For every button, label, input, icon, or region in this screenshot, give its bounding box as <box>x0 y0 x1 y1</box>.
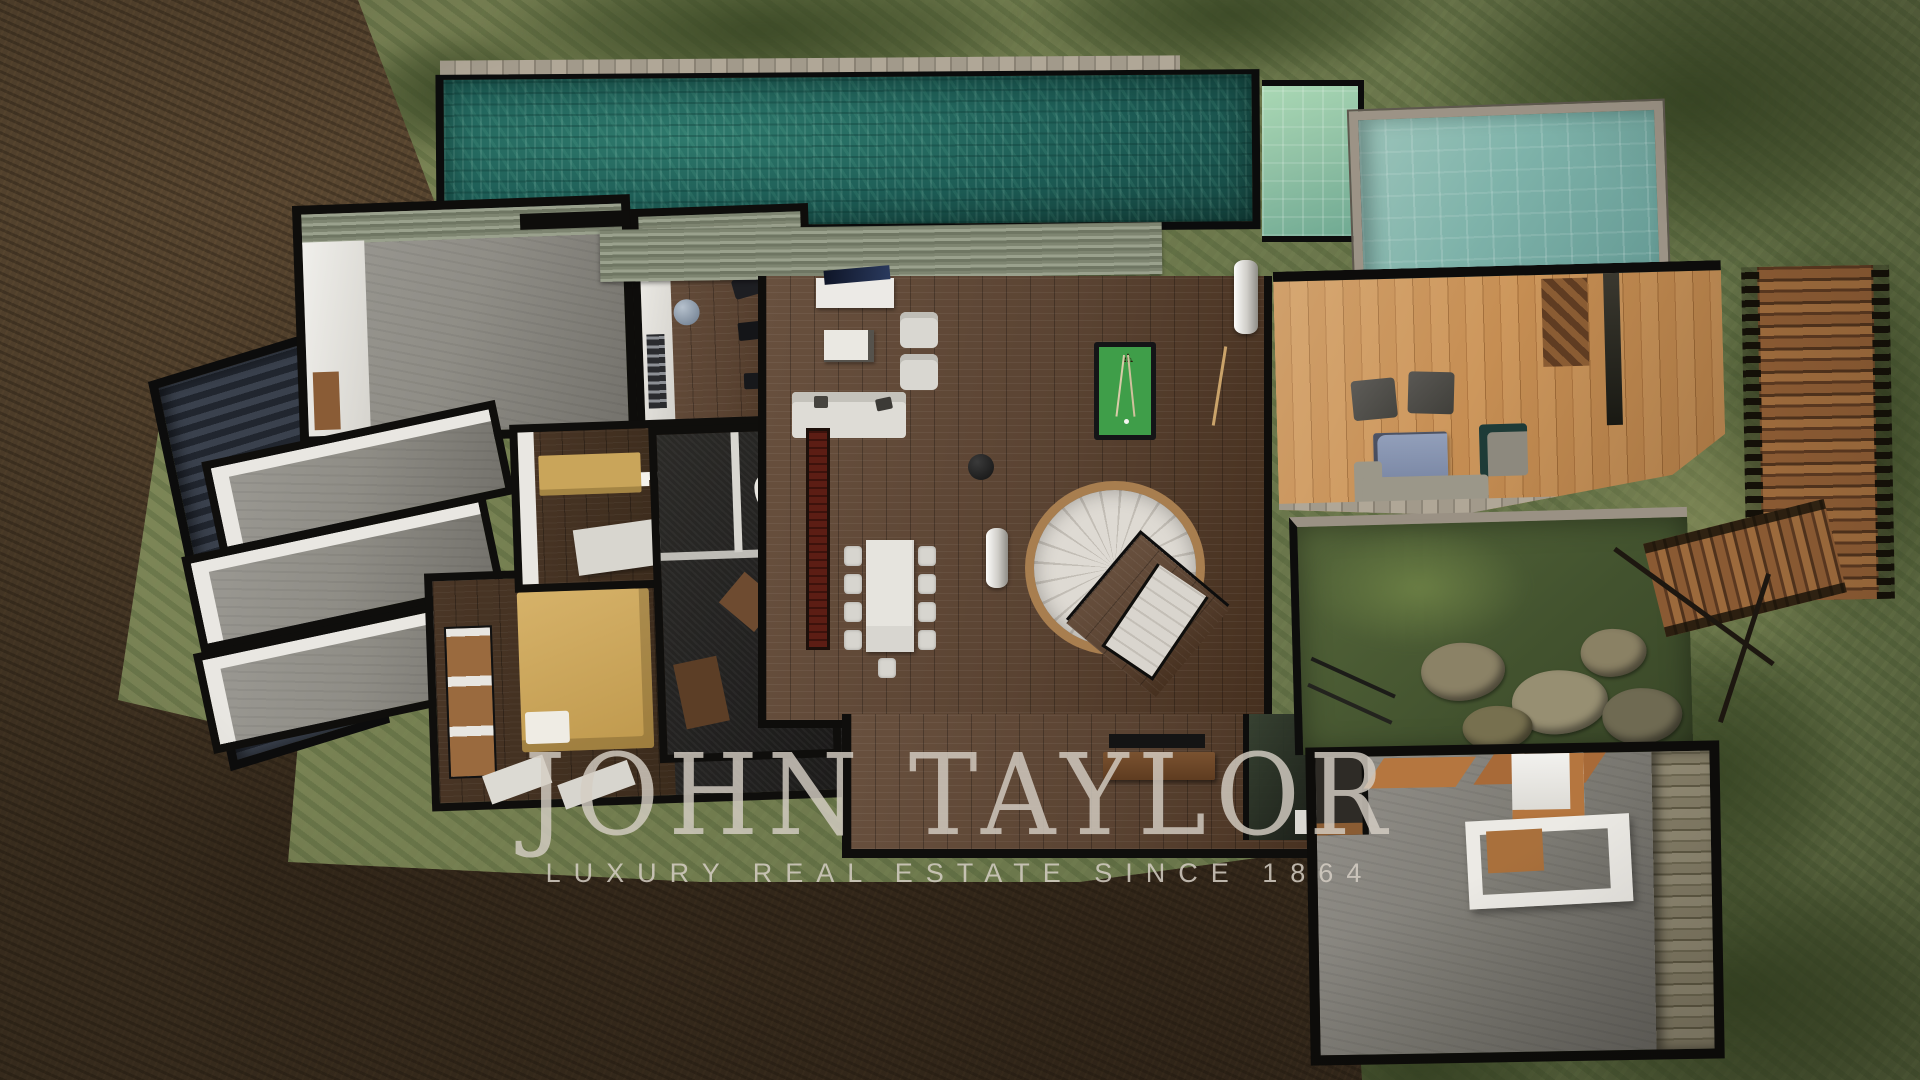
ottoman <box>1350 377 1398 421</box>
desk-yellow <box>538 452 641 496</box>
column-white <box>1234 260 1258 334</box>
bushes <box>1307 525 1530 651</box>
dining-table <box>866 540 914 652</box>
cue-stick <box>1127 355 1135 417</box>
spiral-staircase <box>1028 488 1224 676</box>
watermark-brand-name: JOHN TAYLOR <box>77 740 1843 852</box>
rock <box>1602 687 1683 745</box>
dining-chair <box>844 574 862 594</box>
hanging-fireplace <box>968 454 994 480</box>
white-wall <box>517 432 538 584</box>
dining-chair <box>918 602 936 622</box>
ottoman <box>1408 371 1455 414</box>
wood-mat <box>673 656 730 730</box>
cue-stick-wall <box>1212 346 1227 425</box>
wood-post <box>1541 278 1589 367</box>
deck-armchair <box>1479 423 1528 476</box>
courtyard-garden <box>1289 507 1693 755</box>
dining-chair <box>918 574 936 594</box>
column-white <box>986 528 1008 588</box>
armchair <box>900 354 938 390</box>
deck-coffee-table <box>1373 431 1448 479</box>
rock <box>1580 628 1647 678</box>
coffee-table <box>824 330 874 362</box>
billiard-table <box>1094 342 1156 440</box>
partition-wall <box>730 432 742 552</box>
throw-pillow <box>814 396 828 408</box>
dining-chair <box>844 630 862 650</box>
dining-chair <box>844 602 862 622</box>
dining-chair <box>918 546 936 566</box>
great-room <box>758 276 1272 728</box>
dumbbell-rack <box>646 334 667 409</box>
armchair <box>900 312 938 348</box>
dining-chair <box>878 658 896 678</box>
dining-chair <box>918 630 936 650</box>
bookshelf-red <box>806 428 830 650</box>
cue-ball <box>1124 419 1129 424</box>
aerial-floorplan-render: JOHN TAYLOR LUXURY REAL ESTATE SINCE 186… <box>0 0 1920 1080</box>
cue-stick <box>1115 355 1125 417</box>
deck-beam <box>1603 273 1623 425</box>
dining-chair <box>844 546 862 566</box>
exercise-ball <box>673 299 700 326</box>
watermark-tagline: LUXURY REAL ESTATE SINCE 1864 <box>0 858 1920 889</box>
wood-door <box>313 371 341 430</box>
spa-pool-section <box>1262 80 1364 242</box>
rock <box>1420 642 1505 702</box>
